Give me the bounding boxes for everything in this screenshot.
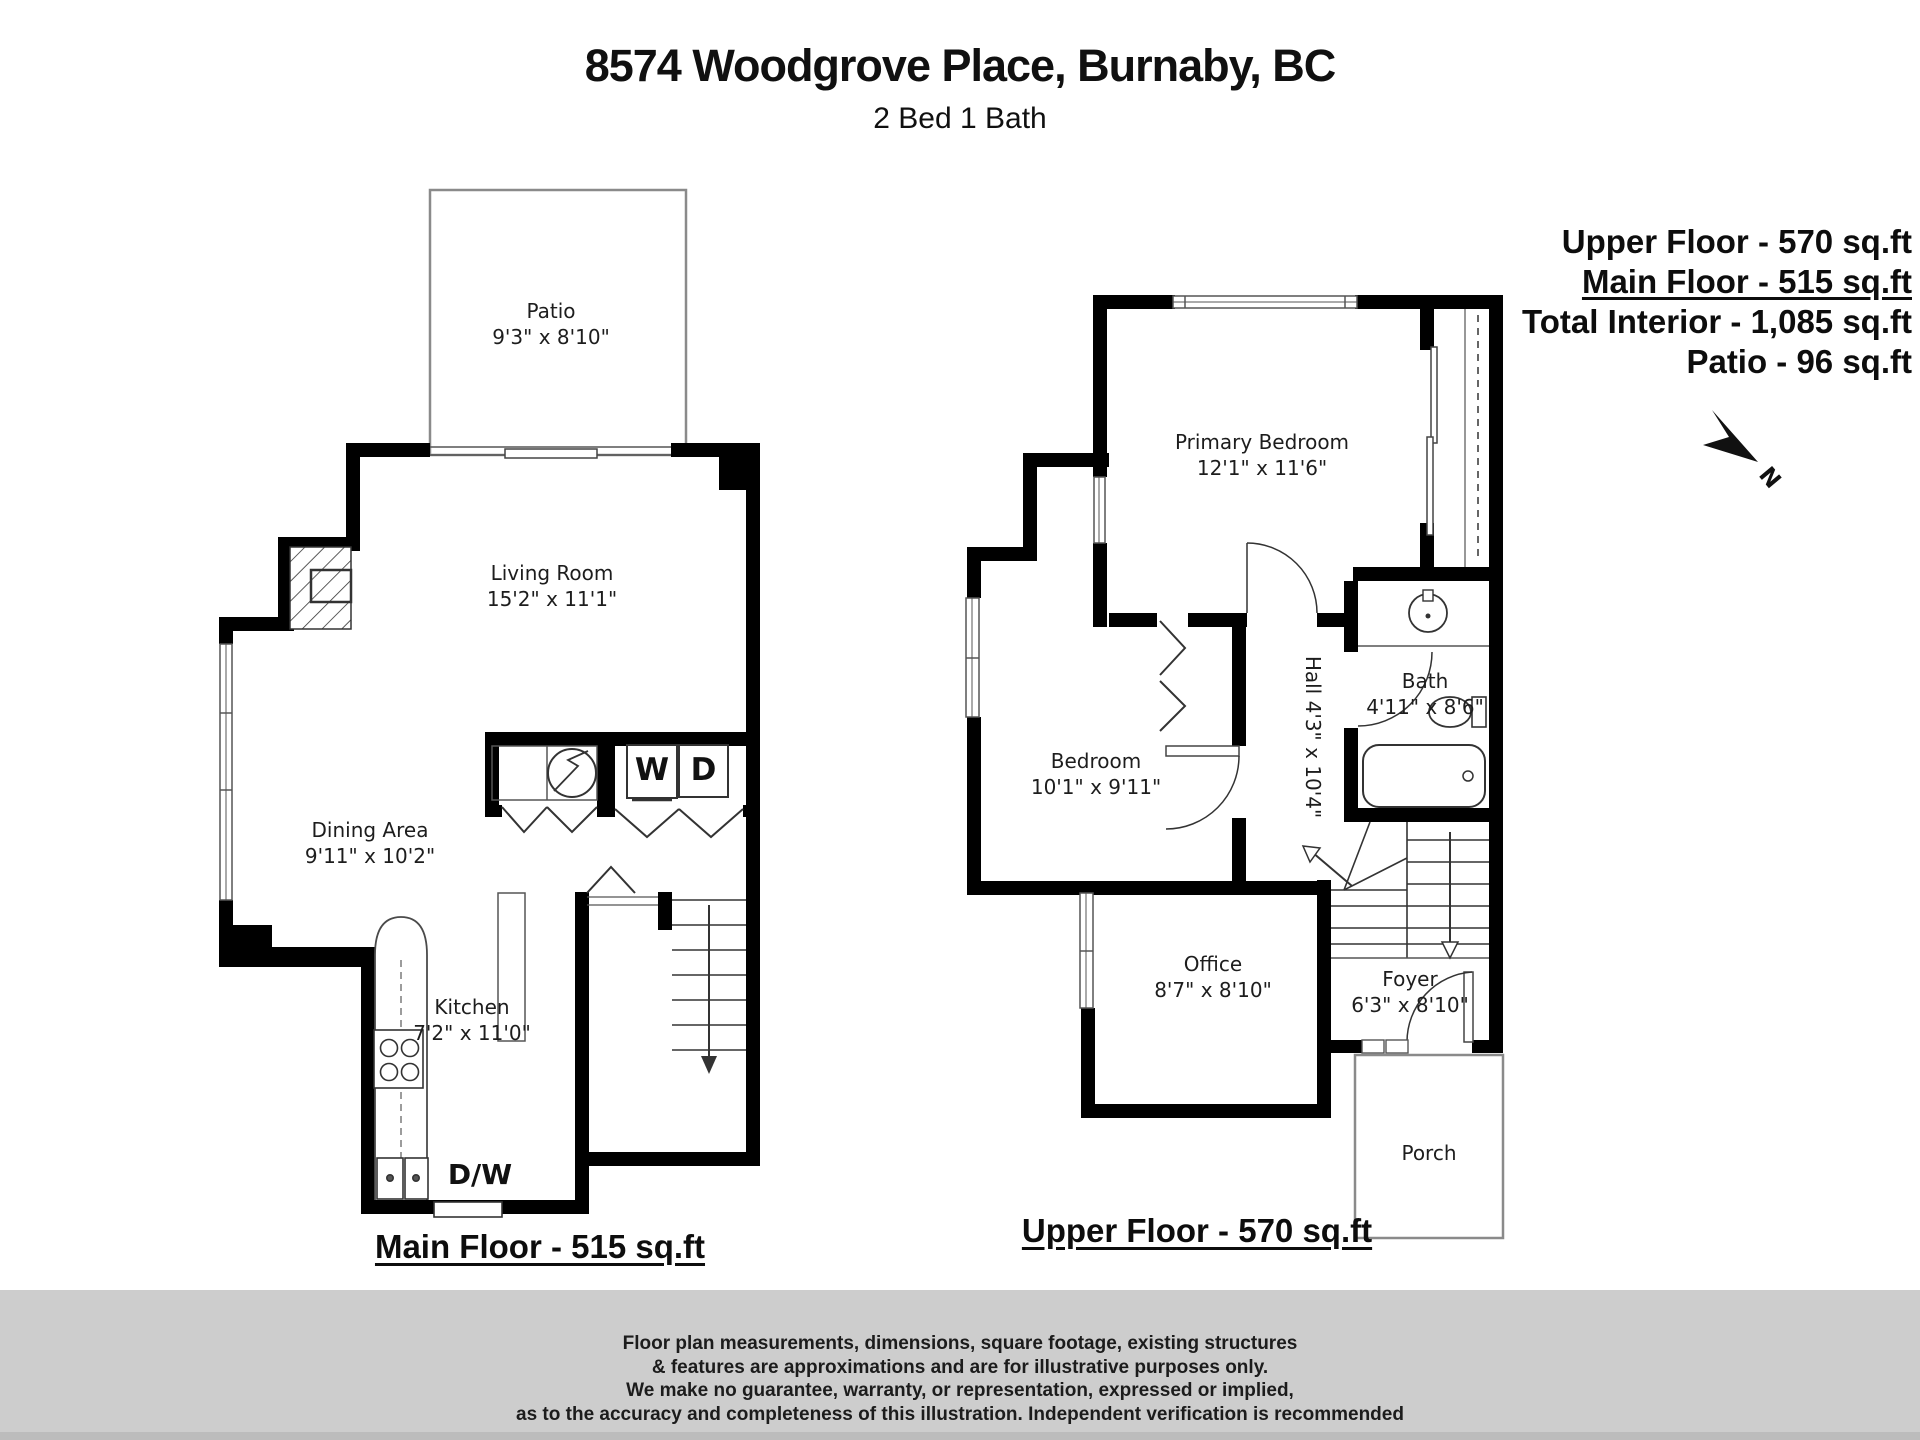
disclaimer-text: Floor plan measurements, dimensions, squ… [0, 1332, 1920, 1426]
bifold-doors [502, 807, 743, 837]
north-label: N [1753, 462, 1785, 493]
washer-label: W [627, 752, 677, 788]
main-floor-caption: Main Floor - 515 sq.ft [340, 1228, 740, 1266]
dishwasher-label: D/W [420, 1158, 540, 1191]
north-arrow-icon: N [1703, 410, 1786, 494]
floor-plan-drawing: N [0, 0, 1920, 1440]
disclaimer-line: as to the accuracy and completeness of t… [0, 1403, 1920, 1427]
dryer-label: D [679, 752, 728, 788]
disclaimer-line: & features are approximations and are fo… [0, 1356, 1920, 1380]
disclaimer-line: Floor plan measurements, dimensions, squ… [0, 1332, 1920, 1356]
footer-edge [0, 1432, 1920, 1440]
fireplace-icon [290, 547, 351, 629]
bathtub-icon [1363, 745, 1485, 807]
disclaimer-line: We make no guarantee, warranty, or repre… [0, 1379, 1920, 1403]
upper-floor-caption: Upper Floor - 570 sq.ft [997, 1212, 1397, 1250]
closet-sliding-doors [1427, 309, 1478, 567]
room-label-kitchen: Kitchen 7'2" x 11'0" [342, 994, 602, 1046]
room-label-patio: Patio 9'3" x 8'10" [421, 298, 681, 350]
room-label-hall: Hall 4'3" x 10'4" [1274, 652, 1326, 822]
footer-band: Floor plan measurements, dimensions, squ… [0, 1290, 1920, 1440]
room-label-bath: Bath 4'11" x 8'6" [1325, 668, 1525, 720]
foyer-sill [1362, 1040, 1408, 1053]
dishwasher-box [434, 1202, 502, 1217]
dining-window [220, 644, 232, 900]
room-label-primary-bedroom: Primary Bedroom 12'1" x 11'6" [1132, 429, 1392, 481]
room-label-dining-area: Dining Area 9'11" x 10'2" [240, 817, 500, 869]
furnace-icon [492, 746, 597, 800]
room-label-porch: Porch [1299, 1140, 1559, 1166]
room-label-living-room: Living Room 15'2" x 11'1" [422, 560, 682, 612]
bath-sink-icon [1409, 590, 1447, 632]
floor-plan-page: 8574 Woodgrove Place, Burnaby, BC 2 Bed … [0, 0, 1920, 1440]
room-label-bedroom: Bedroom 10'1" x 9'11" [966, 748, 1226, 800]
bedroom-closet-doors [1160, 621, 1185, 731]
room-label-foyer: Foyer 6'3" x 8'10" [1280, 966, 1540, 1018]
